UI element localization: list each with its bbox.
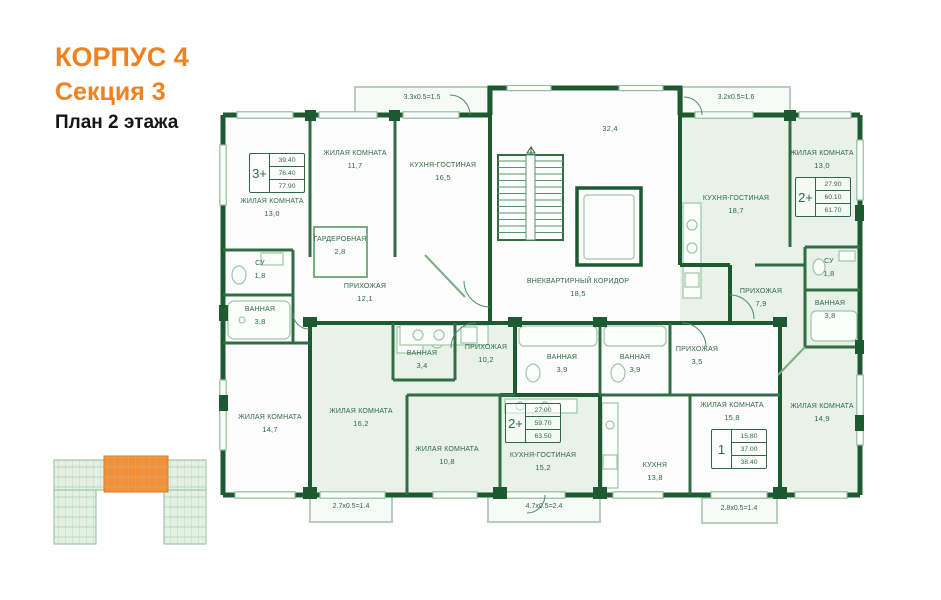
apartment-type: 2+ [796, 178, 816, 216]
apartment-area-value: 27.00 [526, 404, 560, 417]
room-label: КУХНЯ-ГОСТИНАЯ16,5 [410, 161, 476, 183]
room-area: 16,2 [329, 418, 393, 429]
room-label: ГАРДЕРОБНАЯ2,8 [313, 235, 366, 257]
room-label: ВАННАЯ3,8 [245, 305, 275, 327]
room-label: КУХНЯ13,8 [643, 461, 667, 483]
room-label: ПРИХОЖАЯ7,9 [740, 287, 782, 309]
apartment-type: 1 [712, 430, 732, 468]
room-label: ЖИЛАЯ КОМНАТА14,7 [238, 413, 302, 435]
room-area: 13,0 [790, 160, 854, 171]
building-title: КОРПУС 4 [55, 42, 189, 73]
room-label: ЖИЛАЯ КОМНАТА10,8 [415, 445, 479, 467]
room-name: ЖИЛАЯ КОМНАТА [238, 413, 302, 424]
room-label: КУХНЯ-ГОСТИНАЯ18,7 [703, 194, 769, 216]
room-label: ЖИЛАЯ КОМНАТА11,7 [323, 149, 387, 171]
room-name: ПРИХОЖАЯ [740, 287, 782, 298]
apartment-area-value: 38.40 [732, 456, 766, 468]
room-area: 15,2 [510, 462, 576, 473]
room-name: ЖИЛАЯ КОМНАТА [329, 407, 393, 418]
apartment-type: 3+ [250, 154, 270, 192]
room-name: ЖИЛАЯ КОМНАТА [700, 401, 764, 412]
room-label: ВАННАЯ3,9 [620, 353, 650, 375]
room-name: ЖИЛАЯ КОМНАТА [323, 149, 387, 160]
section-title: Секция 3 [55, 77, 189, 107]
room-area: 15,8 [700, 412, 764, 423]
apartment-stamp: 2+27.0059.7063.50 [505, 403, 561, 443]
room-area: 14,9 [790, 413, 854, 424]
apartment-area-value: 59.70 [526, 417, 560, 430]
room-area: 3,8 [815, 310, 845, 321]
apartment-area-value: 39.40 [270, 154, 304, 167]
room-name: ВАННАЯ [407, 349, 437, 360]
room-area: 14,7 [238, 424, 302, 435]
room-label: ВАННАЯ3,9 [547, 353, 577, 375]
apartment-area-value: 61.70 [816, 204, 850, 216]
floor-plan: ЖИЛАЯ КОМНАТА13,0ЖИЛАЯ КОМНАТА11,7КУХНЯ-… [215, 85, 940, 530]
plan-labels-layer: ЖИЛАЯ КОМНАТА13,0ЖИЛАЯ КОМНАТА11,7КУХНЯ-… [215, 85, 940, 530]
room-name: ВАННАЯ [620, 353, 650, 364]
room-label: ЖИЛАЯ КОМНАТА14,9 [790, 402, 854, 424]
room-name: СУ [823, 257, 834, 268]
room-name: ПРИХОЖАЯ [465, 343, 507, 354]
apartment-area-value: 37.00 [732, 443, 766, 456]
room-label: ПРИХОЖАЯ12,1 [344, 282, 386, 304]
apartment-area-value: 27.90 [816, 178, 850, 191]
room-label: ВАННАЯ3,4 [407, 349, 437, 371]
room-area: 7,9 [740, 298, 782, 309]
room-area: 10,8 [415, 456, 479, 467]
room-label: ВНЕКВАРТИРНЫЙ КОРИДОР18,5 [527, 277, 629, 299]
apartment-area-value: 60.10 [816, 191, 850, 204]
room-area: 32,4 [602, 123, 617, 134]
room-name: КУХНЯ-ГОСТИНАЯ [703, 194, 769, 205]
balcony-area-label: 3.2х0.5=1.6 [718, 94, 755, 101]
area-label: 32,4 [602, 123, 617, 134]
room-area: 11,7 [323, 160, 387, 171]
room-label: ЖИЛАЯ КОМНАТА13,0 [790, 149, 854, 171]
room-area: 3,5 [676, 356, 718, 367]
floor-title: План 2 этажа [55, 112, 189, 135]
room-area: 12,1 [344, 293, 386, 304]
room-area: 1,8 [254, 270, 265, 281]
room-area: 1,8 [823, 268, 834, 279]
room-label: ЖИЛАЯ КОМНАТА13,0 [240, 197, 304, 219]
room-area: 18,7 [703, 205, 769, 216]
room-label: ПРИХОЖАЯ10,2 [465, 343, 507, 365]
room-name: ЖИЛАЯ КОМНАТА [790, 402, 854, 413]
room-label: ПРИХОЖАЯ3,5 [676, 345, 718, 367]
room-area: 18,5 [527, 288, 629, 299]
room-area: 3,9 [547, 364, 577, 375]
balcony-area-label: 3.3х0.5=1.5 [404, 94, 441, 101]
room-name: ЖИЛАЯ КОМНАТА [790, 149, 854, 160]
room-area: 13,8 [643, 472, 667, 483]
apartment-area-value: 15.80 [732, 430, 766, 443]
room-area: 2,8 [313, 246, 366, 257]
room-area: 3,9 [620, 364, 650, 375]
room-name: ВАННАЯ [547, 353, 577, 364]
room-area: 16,5 [410, 172, 476, 183]
room-name: СУ [254, 259, 265, 270]
apartment-area-value: 63.50 [526, 430, 560, 442]
title-block: КОРПУС 4 Секция 3 План 2 этажа [55, 42, 189, 135]
room-label: ЖИЛАЯ КОМНАТА15,8 [700, 401, 764, 423]
room-name: ПРИХОЖАЯ [344, 282, 386, 293]
room-name: ВНЕКВАРТИРНЫЙ КОРИДОР [527, 277, 629, 288]
room-name: КУХНЯ [643, 461, 667, 472]
room-label: КУХНЯ-ГОСТИНАЯ15,2 [510, 451, 576, 473]
room-label: ВАННАЯ3,8 [815, 299, 845, 321]
room-area: 10,2 [465, 354, 507, 365]
room-name: КУХНЯ-ГОСТИНАЯ [410, 161, 476, 172]
room-label: СУ1,8 [823, 257, 834, 279]
room-label: СУ1,8 [254, 259, 265, 281]
balcony-area-label: 4.7х0.5=2.4 [526, 503, 563, 510]
room-area: 3,8 [245, 316, 275, 327]
room-label: ЖИЛАЯ КОМНАТА16,2 [329, 407, 393, 429]
balcony-area-label: 2.7х0.5=1.4 [333, 503, 370, 510]
room-name: ВАННАЯ [245, 305, 275, 316]
apartment-stamp: 115.8037.0038.40 [711, 429, 767, 469]
apartment-area-value: 77.90 [270, 180, 304, 192]
room-name: ВАННАЯ [815, 299, 845, 310]
floorplan-page: { "header": { "building": "КОРПУС 4", "s… [0, 0, 941, 600]
room-name: ПРИХОЖАЯ [676, 345, 718, 356]
apartment-type: 2+ [506, 404, 526, 442]
balcony-area-label: 2.8х0.5=1.4 [721, 505, 758, 512]
current-section-highlight[interactable] [104, 456, 168, 492]
room-name: ЖИЛАЯ КОМНАТА [415, 445, 479, 456]
room-area: 3,4 [407, 360, 437, 371]
apartment-stamp: 3+39.4076.4077.90 [249, 153, 305, 193]
apartment-area-value: 76.40 [270, 167, 304, 180]
room-area: 13,0 [240, 208, 304, 219]
room-name: КУХНЯ-ГОСТИНАЯ [510, 451, 576, 462]
room-name: ЖИЛАЯ КОМНАТА [240, 197, 304, 208]
building-overview-map[interactable] [52, 452, 208, 548]
room-name: ГАРДЕРОБНАЯ [313, 235, 366, 246]
apartment-stamp: 2+27.9060.1061.70 [795, 177, 851, 217]
